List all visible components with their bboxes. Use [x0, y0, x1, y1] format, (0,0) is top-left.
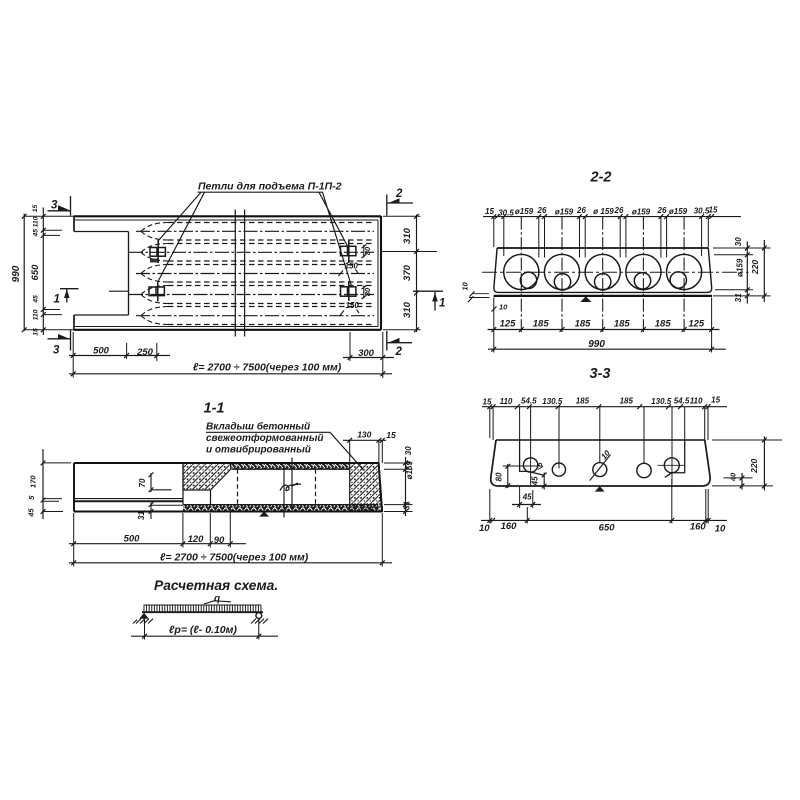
svg-text:185: 185	[533, 319, 550, 330]
svg-text:26: 26	[657, 206, 667, 215]
svg-text:15: 15	[32, 205, 39, 213]
svg-text:110: 110	[33, 309, 40, 320]
svg-text:110: 110	[500, 397, 513, 406]
svg-text:10: 10	[479, 523, 490, 534]
svg-text:310: 310	[402, 227, 413, 244]
svg-text:15: 15	[709, 206, 718, 215]
svg-text:500: 500	[93, 346, 110, 357]
svg-text:30: 30	[404, 446, 413, 455]
svg-text:и отвибрированный: и отвибрированный	[206, 444, 311, 456]
svg-text:2: 2	[395, 188, 403, 200]
svg-text:80: 80	[363, 246, 372, 255]
svg-text:90: 90	[214, 535, 225, 546]
svg-text:125: 125	[500, 319, 517, 330]
svg-text:31: 31	[137, 511, 146, 520]
svg-text:310: 310	[402, 301, 413, 318]
svg-text:185: 185	[576, 397, 590, 406]
svg-text:2-2: 2-2	[590, 170, 612, 186]
svg-text:15: 15	[485, 207, 494, 216]
svg-text:ℓp= (ℓ- 0.10м): ℓp= (ℓ- 0.10м)	[169, 624, 237, 636]
svg-text:70: 70	[138, 478, 147, 487]
svg-text:26: 26	[537, 206, 547, 215]
svg-text:1: 1	[54, 294, 60, 306]
svg-text:110: 110	[33, 216, 40, 227]
svg-text:q: q	[214, 594, 220, 605]
svg-text:54.5: 54.5	[521, 397, 537, 406]
svg-text:990: 990	[11, 265, 22, 282]
svg-text:Петли для подъема П-1П-2: Петли для подъема П-1П-2	[198, 181, 342, 193]
svg-text:220: 220	[750, 260, 760, 275]
svg-text:45: 45	[33, 229, 40, 238]
svg-text:ø159: ø159	[515, 207, 534, 216]
svg-text:80: 80	[495, 472, 504, 481]
svg-text:ø159: ø159	[405, 461, 414, 480]
svg-text:5: 5	[535, 462, 544, 467]
svg-text:250: 250	[136, 347, 154, 358]
svg-text:150: 150	[346, 301, 360, 310]
svg-text:160: 160	[690, 522, 707, 533]
svg-text:130: 130	[357, 430, 371, 440]
svg-text:40: 40	[729, 472, 738, 482]
svg-text:30.5: 30.5	[694, 207, 710, 216]
svg-text:45: 45	[33, 295, 40, 304]
svg-text:ℓ= 2700 ÷ 7500(через 100 мм): ℓ= 2700 ÷ 7500(через 100 мм)	[193, 362, 342, 374]
svg-text:ø 159: ø 159	[593, 207, 614, 216]
svg-text:3-3: 3-3	[590, 366, 611, 382]
svg-text:ø159: ø159	[555, 208, 574, 217]
svg-text:ø159: ø159	[669, 207, 688, 216]
svg-text:120: 120	[188, 534, 205, 545]
svg-text:185: 185	[575, 319, 592, 330]
svg-text:45: 45	[522, 493, 532, 502]
svg-text:2: 2	[395, 346, 403, 358]
svg-text:1-1: 1-1	[204, 401, 225, 417]
svg-text:170: 170	[29, 475, 38, 488]
svg-text:220: 220	[749, 458, 759, 473]
svg-text:31: 31	[734, 293, 743, 302]
svg-text:26: 26	[576, 206, 586, 215]
svg-text:370: 370	[402, 264, 413, 281]
svg-text:54.5: 54.5	[674, 397, 690, 406]
svg-text:3: 3	[53, 345, 60, 357]
svg-text:ℓ= 2700 ÷ 7500(через 100 мм): ℓ= 2700 ÷ 7500(через 100 мм)	[160, 552, 309, 564]
svg-text:45: 45	[531, 476, 540, 486]
svg-text:ø159: ø159	[735, 258, 744, 277]
svg-text:125: 125	[688, 319, 705, 330]
svg-text:3: 3	[51, 200, 58, 212]
svg-text:185: 185	[620, 397, 634, 406]
svg-text:10: 10	[461, 282, 470, 291]
svg-text:10: 10	[599, 448, 612, 461]
svg-text:10: 10	[499, 303, 508, 312]
svg-text:1: 1	[439, 298, 445, 310]
svg-text:5: 5	[27, 495, 36, 500]
svg-text:500: 500	[124, 534, 141, 545]
svg-text:31: 31	[403, 501, 412, 510]
svg-text:15: 15	[711, 396, 720, 405]
svg-text:свежеотформованный: свежеотформованный	[206, 432, 323, 444]
svg-text:110: 110	[690, 397, 703, 406]
svg-text:160: 160	[501, 521, 518, 532]
svg-text:30: 30	[734, 237, 743, 246]
svg-text:650: 650	[30, 264, 41, 281]
svg-text:15: 15	[386, 430, 396, 440]
svg-text:80: 80	[363, 287, 372, 296]
svg-text:15: 15	[33, 328, 40, 336]
svg-text:650: 650	[599, 523, 616, 534]
svg-text:Вкладыш бетонный: Вкладыш бетонный	[206, 421, 310, 433]
svg-text:Расчетная схема.: Расчетная схема.	[154, 578, 278, 593]
svg-text:185: 185	[614, 319, 631, 330]
svg-text:130.5: 130.5	[651, 397, 672, 406]
svg-text:990: 990	[588, 339, 605, 350]
svg-text:300: 300	[358, 348, 375, 359]
svg-text:45: 45	[27, 508, 36, 518]
svg-text:10: 10	[715, 524, 726, 535]
svg-text:26: 26	[614, 206, 624, 215]
svg-text:185: 185	[655, 319, 672, 330]
svg-text:ø159: ø159	[632, 208, 651, 217]
